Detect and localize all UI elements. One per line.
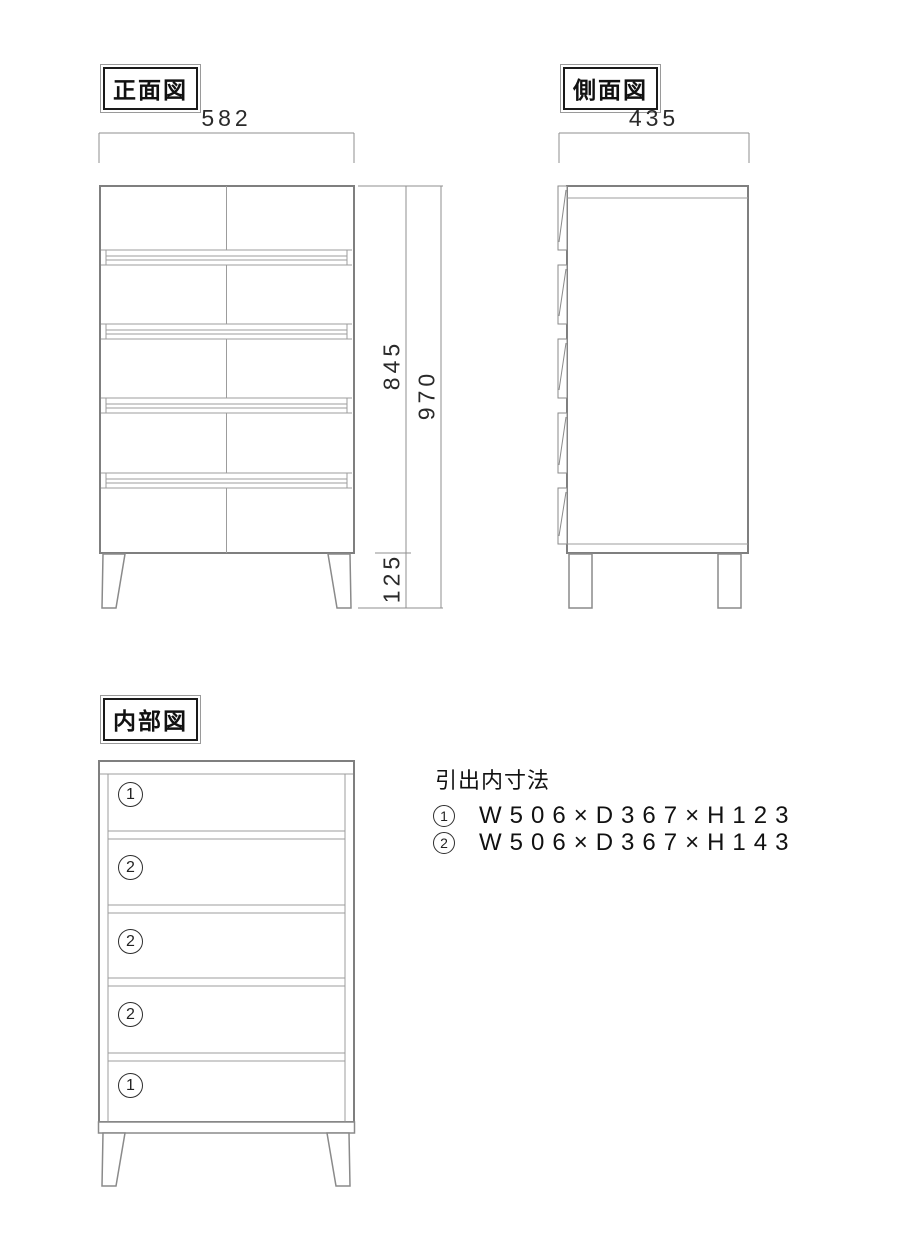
drawer-spec-row-2: 2 W506×D367×H143 [433,829,796,857]
side-view-label: 側面図 [563,67,658,110]
compartment-3-badge: 2 [118,929,143,954]
internal-view-label: 内部図 [103,698,198,741]
front-width-dimension-lines [99,133,354,163]
spec-1-badge: 1 [433,805,455,827]
front-leg-height-dim-text: 125 [379,553,406,603]
spec-2-dims: W506×D367×H143 [479,829,796,857]
compartment-4-badge: 2 [118,1002,143,1027]
front-view-label: 正面図 [103,67,198,110]
spec-2-badge: 2 [433,832,455,854]
spec-1-dims: W506×D367×H123 [479,802,796,830]
drawing-sheet: 正面図 側面図 内部図 582 435 845 970 125 1 2 2 2 … [0,0,900,1250]
drawer-specs-title: 引出内寸法 [435,763,550,795]
internal-legs [102,1133,350,1186]
front-legs [102,554,351,608]
compartment-2-badge: 2 [118,855,143,880]
side-view-drawing [558,133,749,608]
front-width-dim-text: 582 [99,105,354,132]
internal-view-label-box: 内部図 [100,695,201,744]
technical-linework [0,0,900,1250]
internal-view-drawing [99,761,355,1186]
side-depth-dimension-lines [559,133,749,163]
compartment-5-badge: 1 [118,1073,143,1098]
side-depth-dim-text: 435 [559,105,749,132]
side-legs [569,554,741,608]
drawer-spec-row-1: 1 W506×D367×H123 [433,802,796,830]
side-drawer-profiles [558,186,567,544]
front-total-height-dim-text: 970 [414,370,441,420]
compartment-1-badge: 1 [118,782,143,807]
side-cabinet-body [567,186,748,553]
internal-bottom-plinth [99,1122,355,1133]
front-body-height-dim-text: 845 [379,340,406,390]
